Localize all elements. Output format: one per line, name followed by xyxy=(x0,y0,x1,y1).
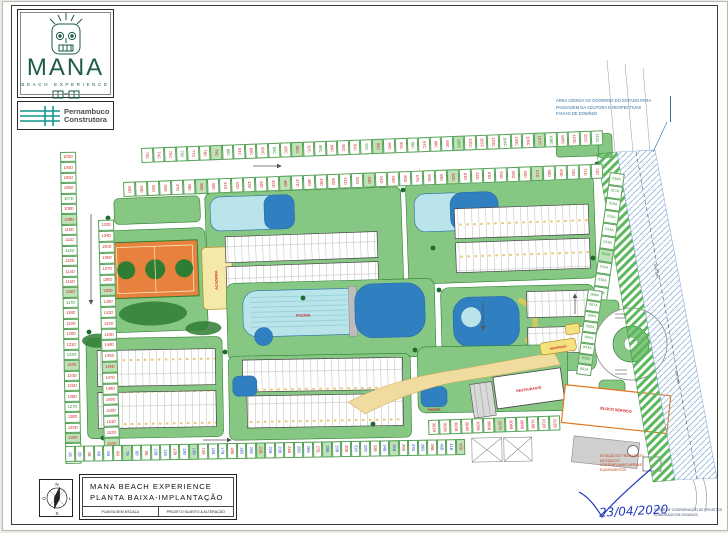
parking-stall: 37B xyxy=(408,440,418,456)
sports-court xyxy=(111,240,199,299)
parking-stall: 307B xyxy=(494,417,506,432)
parking-stall: 47D xyxy=(291,175,304,190)
parking-stall: 55D xyxy=(387,171,400,186)
parking-stall: 68D xyxy=(543,165,556,180)
parking-stall: 101C xyxy=(464,135,476,150)
housing-row xyxy=(454,204,589,239)
parking-stall: 123D xyxy=(64,360,80,371)
parking-stall: 110D xyxy=(61,225,77,236)
parking-stall: 150D xyxy=(103,405,119,416)
parking-stall: 65D xyxy=(507,167,520,182)
parking-stall: 151D xyxy=(103,416,119,427)
parking-stall: 29B xyxy=(332,441,342,457)
parking-stall: 81C xyxy=(233,144,245,159)
parking-stall: 301B xyxy=(428,420,440,435)
parking-stall: 9B xyxy=(141,445,151,461)
parking-stall: 115D xyxy=(62,277,78,288)
parking-stall: 30B xyxy=(341,441,351,457)
parking-stall: 135D xyxy=(99,241,115,252)
parking-stall: 95C xyxy=(395,138,407,153)
parking-stall: 134D xyxy=(98,230,114,241)
parking-stall: 107D xyxy=(61,193,77,204)
parking-stall: 125D xyxy=(64,381,80,392)
note-bracket-line xyxy=(670,96,671,122)
project-title: MANA BEACH EXPERIENCE xyxy=(90,481,233,492)
parking-stall: 15B xyxy=(198,444,208,460)
parking-stall: 103D xyxy=(60,152,76,163)
parking-stall: 105D xyxy=(60,173,76,184)
parking-stall: 63D xyxy=(483,168,496,183)
parking-stall: 57D xyxy=(411,170,424,185)
parking-stall: 108D xyxy=(61,204,77,215)
parking-stall: 122D xyxy=(63,349,79,360)
reception-building xyxy=(565,323,580,335)
parking-stall: 110C xyxy=(568,131,580,146)
parking-stall: 69D xyxy=(555,165,568,180)
builder-grid-icon xyxy=(18,104,64,128)
parking-stall: 50D xyxy=(327,174,340,189)
parking-stall: 26B xyxy=(303,442,313,458)
parking-stall: 21B xyxy=(256,443,266,459)
parking-stall: 83C xyxy=(256,143,268,158)
parking-stall: 66D xyxy=(519,166,532,181)
parking-stall: 71D xyxy=(579,164,592,179)
parking-stall: 106D xyxy=(61,183,77,194)
parking-stall: 302B xyxy=(439,419,451,434)
parking-stall: 41D xyxy=(219,178,232,193)
parking-stall: 80C xyxy=(222,144,234,159)
parking-stall: 146D xyxy=(102,361,118,372)
parking-stall: 109C xyxy=(556,132,568,147)
parking-stall: 23B xyxy=(275,442,285,458)
parking-stall: 142D xyxy=(101,318,117,329)
parking-stall: 309B xyxy=(516,417,528,432)
builder-name: Pernambuco Construtora xyxy=(64,108,109,124)
parking-stall: 124D xyxy=(64,370,80,381)
parking-stall: 38B xyxy=(418,440,428,456)
parking-stall: 114D xyxy=(62,266,78,277)
parking-stall: 103C xyxy=(487,134,499,149)
parking-stall: 148D xyxy=(102,383,118,394)
housing-row xyxy=(225,232,378,263)
parking-stall: 53D xyxy=(363,172,376,187)
small-pool xyxy=(233,376,257,396)
parking-stall: 44D xyxy=(255,176,268,191)
parking-stall: 67D xyxy=(531,166,544,181)
parking-stall: 129D xyxy=(65,422,81,433)
parking-stall: 94C xyxy=(383,138,395,153)
parking-stall: 138D xyxy=(99,274,115,285)
scale-note: PLANTA SEM ESCALA xyxy=(83,507,159,516)
parking-stall: 76C xyxy=(176,146,188,161)
parking-stall: 20B xyxy=(246,443,256,459)
note-line: FAIXAS DE DOMÍNIO xyxy=(556,111,668,118)
parking-stall: 56D xyxy=(399,171,412,186)
parking-stall: 308B xyxy=(505,417,517,432)
parking-stall: 113D xyxy=(62,256,78,267)
parking-stall: 27B xyxy=(313,442,323,458)
tiki-mask-icon xyxy=(37,12,95,56)
parking-stall: 143D xyxy=(101,329,117,340)
parking-stall: 126D xyxy=(64,391,80,402)
housing-row xyxy=(242,357,403,392)
parking-stall: 147D xyxy=(102,372,118,383)
parking-stall: 106C xyxy=(522,133,534,148)
parking-stall: 86C xyxy=(291,142,303,157)
parking-stall: 79C xyxy=(210,145,222,160)
parking-stall: 310B xyxy=(527,416,539,431)
parking-stall: 001A xyxy=(576,364,592,377)
parking-stall: 54D xyxy=(375,172,388,187)
parking-stall: 99C xyxy=(441,136,453,151)
parking-stall: 42D xyxy=(231,177,244,192)
parking-stall: 8B xyxy=(132,445,142,461)
svg-text:S: S xyxy=(55,511,58,516)
parking-stall: 31B xyxy=(351,441,361,457)
parking-stall: 3B xyxy=(84,446,94,462)
pergola xyxy=(472,437,532,462)
parking-stall: 78C xyxy=(199,145,211,160)
title-block: MANA BEACH EXPERIENCE PLANTA BAIXA-IMPLA… xyxy=(79,474,237,520)
parking-stall: 112D xyxy=(62,245,78,256)
parking-stall: 84C xyxy=(268,143,280,158)
parking-stall: 64D xyxy=(495,167,508,182)
parking-stall: 96C xyxy=(406,137,418,152)
parking-stall: 145D xyxy=(101,350,117,361)
parking-stall: 58D xyxy=(423,170,436,185)
parking-stall: 111D xyxy=(61,235,77,246)
parking-stall: 51D xyxy=(339,173,352,188)
parking-stall: 24B xyxy=(284,442,294,458)
svg-text:N: N xyxy=(55,482,58,487)
parking-stall: 12B xyxy=(170,444,180,460)
parking-stall: 104C xyxy=(499,134,511,149)
parking-stall: 72D xyxy=(591,164,604,179)
parking-stall: 91C xyxy=(349,140,361,155)
parking-stall: 107C xyxy=(533,132,545,147)
parking-stall: 25B xyxy=(294,442,304,458)
parking-stall: 306B xyxy=(483,418,495,433)
revision-note: PROJETO SUJEITO A ALTERAÇÃO xyxy=(159,507,234,516)
parking-stall: 61D xyxy=(459,169,472,184)
parking-stall: 42B xyxy=(456,439,466,455)
parking-stall: 32B xyxy=(360,441,370,457)
builder-name-line2: Construtora xyxy=(64,116,109,124)
parking-stall: 152D xyxy=(103,427,119,438)
parking-stall: 40B xyxy=(437,439,447,455)
parking-stall: 6B xyxy=(113,445,123,461)
parking-stall: 60D xyxy=(447,169,460,184)
parking-stall: 75C xyxy=(164,147,176,162)
parking-stall: 70D xyxy=(567,164,580,179)
parking-stall: 109D xyxy=(61,214,77,225)
note-line: EQUIPAMENTOS xyxy=(600,468,660,473)
parking-stall: 37D xyxy=(171,180,184,195)
parking-stall: 74C xyxy=(153,147,165,162)
parking-stall: 100C xyxy=(453,136,465,151)
parking-stall: 119D xyxy=(63,318,79,329)
parking-stall: 10B xyxy=(151,444,161,460)
parking-stall: 7B xyxy=(122,445,132,461)
parking-stall: 121D xyxy=(63,339,79,350)
parking-stall: 92C xyxy=(360,139,372,154)
parking-stall: 136D xyxy=(99,252,115,263)
parking-stall: 104D xyxy=(60,162,76,173)
parking-stall: 13B xyxy=(179,444,189,460)
parking-stall: 36D xyxy=(159,180,172,195)
parking-stall: 34B xyxy=(379,440,389,456)
parking-stall: 312B xyxy=(549,415,561,430)
parking-stall: 116D xyxy=(62,287,78,298)
parking-stall: 11B xyxy=(160,444,170,460)
title-block-inner: MANA BEACH EXPERIENCE PLANTA BAIXA-IMPLA… xyxy=(82,477,234,517)
parking-stall: 77C xyxy=(187,146,199,161)
parking-stall: 120D xyxy=(63,329,79,340)
compass-rose-icon: N S L O xyxy=(40,480,74,516)
parking-stall: 34D xyxy=(135,181,148,196)
parking-stall: 87C xyxy=(303,141,315,156)
parking-stall: 39B xyxy=(427,440,437,456)
parking-stall: 5B xyxy=(103,445,113,461)
right-of-way-note: ÁREA CEDIDA AO GOVERNO DO ESTADO PARAPAS… xyxy=(556,98,668,118)
parking-stall: 46D xyxy=(279,176,292,191)
parking-stall: 45D xyxy=(267,176,280,191)
parking-stall: 73C xyxy=(141,148,153,163)
parking-stall: 112C xyxy=(591,130,603,145)
parking-stall: 130D xyxy=(65,433,81,444)
parking-stall: 117D xyxy=(63,297,79,308)
parking-stall: 48D xyxy=(303,175,316,190)
parking-stall: 52D xyxy=(351,173,364,188)
parking-stall: 140D xyxy=(100,296,116,307)
parking-stall: 36B xyxy=(399,440,409,456)
main-pool-label: PISCINA xyxy=(296,313,311,317)
parking-stall: 22B xyxy=(265,442,275,458)
builder-logo-box: Pernambuco Construtora xyxy=(17,101,114,130)
parking-stall: 18B xyxy=(227,443,237,459)
parking-stall: 35B xyxy=(389,440,399,456)
parking-stall: 1B xyxy=(65,446,75,462)
brand-logo-box: MANA BEACH EXPERIENCE xyxy=(17,9,114,98)
note-line: ÁREA CEDIDA AO GOVERNO DO ESTADO PARA xyxy=(556,98,668,105)
parking-stall: 305B xyxy=(472,418,484,433)
parking-stall: 2B xyxy=(75,446,85,462)
parking-stall: 88C xyxy=(314,141,326,156)
drawing-sheet: ACADEMIA xyxy=(2,1,728,531)
drawing-title: PLANTA BAIXA-IMPLANTAÇÃO xyxy=(90,492,233,503)
housing-row xyxy=(455,238,590,273)
parking-stall: 98C xyxy=(429,136,441,151)
parking-stall: 89C xyxy=(326,140,338,155)
parking-stall: 93C xyxy=(372,139,384,154)
parking-stall: 127D xyxy=(64,401,80,412)
parking-stall: 39D xyxy=(195,179,208,194)
parking-stall: 43D xyxy=(243,177,256,192)
parking-stall: 111C xyxy=(579,131,591,146)
parking-stall: 33B xyxy=(370,441,380,457)
parking-stall: 105C xyxy=(510,133,522,148)
parking-stall: 118D xyxy=(63,308,79,319)
small-pool-label: PISCINA xyxy=(428,408,442,412)
parking-stall: 141D xyxy=(100,307,116,318)
kitchen-building xyxy=(470,382,497,419)
parking-stall: 33D xyxy=(123,182,136,197)
parking-stall: 90C xyxy=(337,140,349,155)
pool-a xyxy=(210,194,295,231)
parking-stall: 38D xyxy=(183,179,196,194)
svg-text:O: O xyxy=(42,496,46,501)
parking-stall: 82C xyxy=(245,144,257,159)
treatment-station-note: ESTAÇÃO DE TRATAMENTODE ESGOTOCONTEMPLAN… xyxy=(600,454,660,472)
parking-stall: 128D xyxy=(65,412,81,423)
parking-stall: 139D xyxy=(100,285,116,296)
parking-stall: 97C xyxy=(418,137,430,152)
parking-stall: 144D xyxy=(101,340,117,351)
parking-stall: 108C xyxy=(545,132,557,147)
parking-stall: 133D xyxy=(98,220,114,231)
parking-stall: 17B xyxy=(217,443,227,459)
parking-stall: 28B xyxy=(322,441,332,457)
parking-stall: 149D xyxy=(103,394,119,405)
parking-stall: 304B xyxy=(461,418,473,433)
svg-text:L: L xyxy=(69,496,72,501)
parking-stall: 303B xyxy=(450,419,462,434)
parking-stall: 311B xyxy=(538,416,550,431)
parking-stall: 102C xyxy=(476,135,488,150)
parking-stall: 137D xyxy=(99,263,115,274)
compass-box: N S L O xyxy=(39,479,73,517)
parking-stall: 19B xyxy=(237,443,247,459)
academy-label: ACADEMIA xyxy=(214,270,219,290)
parking-stall: 59D xyxy=(435,170,448,185)
parking-stall: 16B xyxy=(208,443,218,459)
parking-stall: 4B xyxy=(94,445,104,461)
parking-stall: 41B xyxy=(446,439,456,455)
parking-stall: 62D xyxy=(471,168,484,183)
housing-row xyxy=(527,290,590,318)
parking-stall: 14B xyxy=(189,444,199,460)
parking-stall: 40D xyxy=(207,178,220,193)
parking-stall: 49D xyxy=(315,174,328,189)
parking-stall: 35D xyxy=(147,181,160,196)
parking-stall: 85C xyxy=(279,142,291,157)
